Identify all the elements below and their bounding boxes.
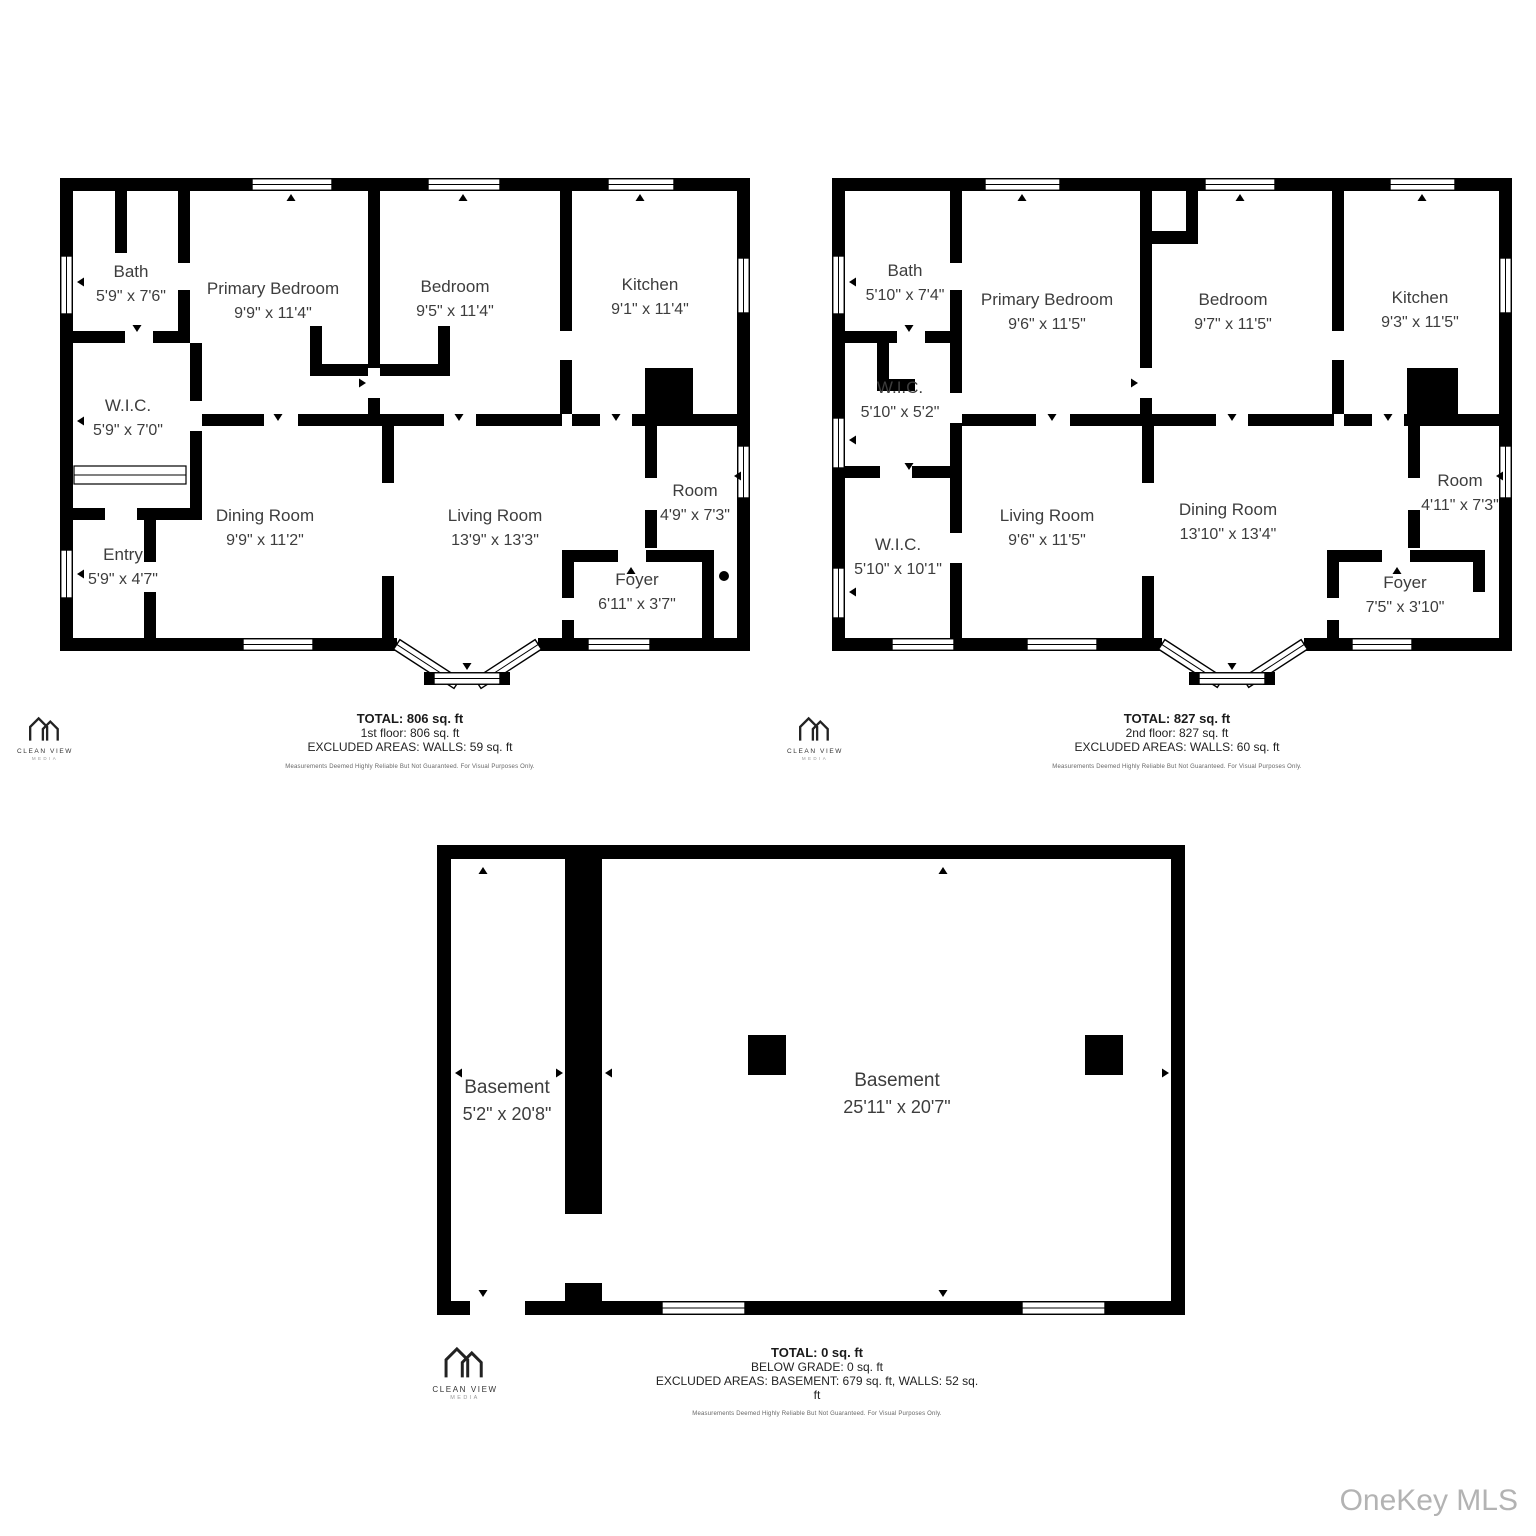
room-dims: 6'11" x 3'7"	[598, 596, 676, 613]
logo-text: CLEAN VIEW	[780, 748, 850, 755]
second-floor-summary: TOTAL: 827 sq. ft 2nd floor: 827 sq. ft …	[1012, 712, 1342, 770]
disclaimer: Measurements Deemed Highly Reliable But …	[1012, 764, 1342, 770]
room-label: Dining Room	[216, 506, 314, 525]
total-line: TOTAL: 806 sq. ft	[245, 712, 575, 727]
room-label: Primary Bedroom	[981, 290, 1113, 309]
total-line: TOTAL: 827 sq. ft	[1012, 712, 1342, 727]
floor-line: 1st floor: 806 sq. ft	[245, 727, 575, 741]
room-label: Bath	[114, 262, 149, 281]
clean-view-logo: CLEAN VIEW MEDIA	[10, 716, 80, 761]
room-label: Primary Bedroom	[207, 279, 339, 298]
room-dims: 7'5" x 3'10"	[1366, 599, 1445, 616]
room-label: Living Room	[448, 506, 543, 525]
excluded-line: EXCLUDED AREAS: WALLS: 59 sq. ft	[245, 741, 575, 755]
room-dims: 5'10" x 5'2"	[861, 404, 940, 421]
floorplan-sheet: Bath 5'9" x 7'6" W.I.C. 5'9" x 7'0" Entr…	[0, 0, 1536, 1536]
room-label: Living Room	[1000, 506, 1095, 525]
clean-view-logo: CLEAN VIEW MEDIA	[422, 1346, 508, 1401]
room-label: Bedroom	[421, 277, 490, 296]
room-label: Basement	[464, 1077, 550, 1098]
room-dims: 9'5" x 11'4"	[416, 303, 494, 320]
houses-icon	[27, 716, 63, 742]
room-dims: 9'7" x 11'5"	[1194, 316, 1272, 333]
excluded-line: EXCLUDED AREAS: WALLS: 60 sq. ft	[1012, 741, 1342, 755]
total-line: TOTAL: 0 sq. ft	[652, 1346, 982, 1361]
room-label: Room	[1437, 471, 1482, 490]
chimney	[645, 368, 693, 414]
logo-subtext: MEDIA	[780, 756, 850, 761]
room-dims: 13'9" x 13'3"	[451, 532, 539, 549]
room-label: W.I.C.	[877, 378, 923, 397]
logo-subtext: MEDIA	[10, 756, 80, 761]
room-dims: 5'9" x 7'0"	[93, 422, 163, 439]
room-label: Basement	[854, 1070, 940, 1091]
room-dims: 9'6" x 11'5"	[1008, 532, 1086, 549]
room-label: Kitchen	[622, 275, 679, 294]
first-floor-summary: TOTAL: 806 sq. ft 1st floor: 806 sq. ft …	[245, 712, 575, 770]
basement-plan: Basement 5'2" x 20'8" Basement 25'11" x …	[437, 845, 1185, 1315]
room-label: Foyer	[1383, 573, 1427, 592]
room-label: Bedroom	[1199, 290, 1268, 309]
support-column	[1085, 1035, 1123, 1075]
room-label: Dining Room	[1179, 500, 1277, 519]
floor-line: BELOW GRADE: 0 sq. ft	[652, 1361, 982, 1375]
support-column	[748, 1035, 786, 1075]
room-dims: 13'10" x 13'4"	[1180, 526, 1277, 543]
excluded-line: EXCLUDED AREAS: BASEMENT: 679 sq. ft, WA…	[652, 1375, 982, 1403]
room-dims: 9'3" x 11'5"	[1381, 314, 1459, 331]
room-label: W.I.C.	[875, 535, 921, 554]
room-dims: 5'10" x 10'1"	[854, 561, 942, 578]
room-label: Foyer	[615, 570, 659, 589]
logo-text: CLEAN VIEW	[422, 1385, 508, 1394]
logo-text: CLEAN VIEW	[10, 748, 80, 755]
room-dims: 9'6" x 11'5"	[1008, 316, 1086, 333]
room-label: Room	[672, 481, 717, 500]
room-dims: 25'11" x 20'7"	[843, 1097, 950, 1117]
fixture-dot	[719, 571, 729, 581]
room-dims: 5'2" x 20'8"	[463, 1104, 552, 1124]
room-label: Entry	[103, 545, 143, 564]
second-floor-plan: Bath 5'10" x 7'4" W.I.C. 5'10" x 5'2" W.…	[832, 178, 1512, 698]
room-dims: 4'9" x 7'3"	[660, 507, 730, 524]
divider-wall	[565, 859, 602, 1214]
disclaimer: Measurements Deemed Highly Reliable But …	[652, 1411, 982, 1417]
room-dims: 9'1" x 11'4"	[611, 301, 689, 318]
room-label: W.I.C.	[105, 396, 151, 415]
room-dims: 5'9" x 4'7"	[88, 571, 158, 588]
houses-icon	[442, 1346, 488, 1379]
logo-subtext: MEDIA	[422, 1395, 508, 1401]
room-label: Kitchen	[1392, 288, 1449, 307]
clean-view-logo: CLEAN VIEW MEDIA	[780, 716, 850, 761]
room-dims: 9'9" x 11'4"	[234, 305, 312, 322]
basement-summary: TOTAL: 0 sq. ft BELOW GRADE: 0 sq. ft EX…	[652, 1346, 982, 1417]
room-label: Bath	[888, 261, 923, 280]
room-dims: 5'9" x 7'6"	[96, 288, 166, 305]
first-floor-plan: Bath 5'9" x 7'6" W.I.C. 5'9" x 7'0" Entr…	[60, 178, 750, 698]
room-dims: 4'11" x 7'3"	[1421, 497, 1499, 514]
floor-line: 2nd floor: 827 sq. ft	[1012, 727, 1342, 741]
houses-icon	[797, 716, 833, 742]
onekey-mls-watermark: OneKey MLS	[1340, 1484, 1518, 1518]
disclaimer: Measurements Deemed Highly Reliable But …	[245, 764, 575, 770]
room-dims: 9'9" x 11'2"	[226, 532, 304, 549]
room-dims: 5'10" x 7'4"	[866, 287, 945, 304]
chimney	[1407, 368, 1458, 414]
